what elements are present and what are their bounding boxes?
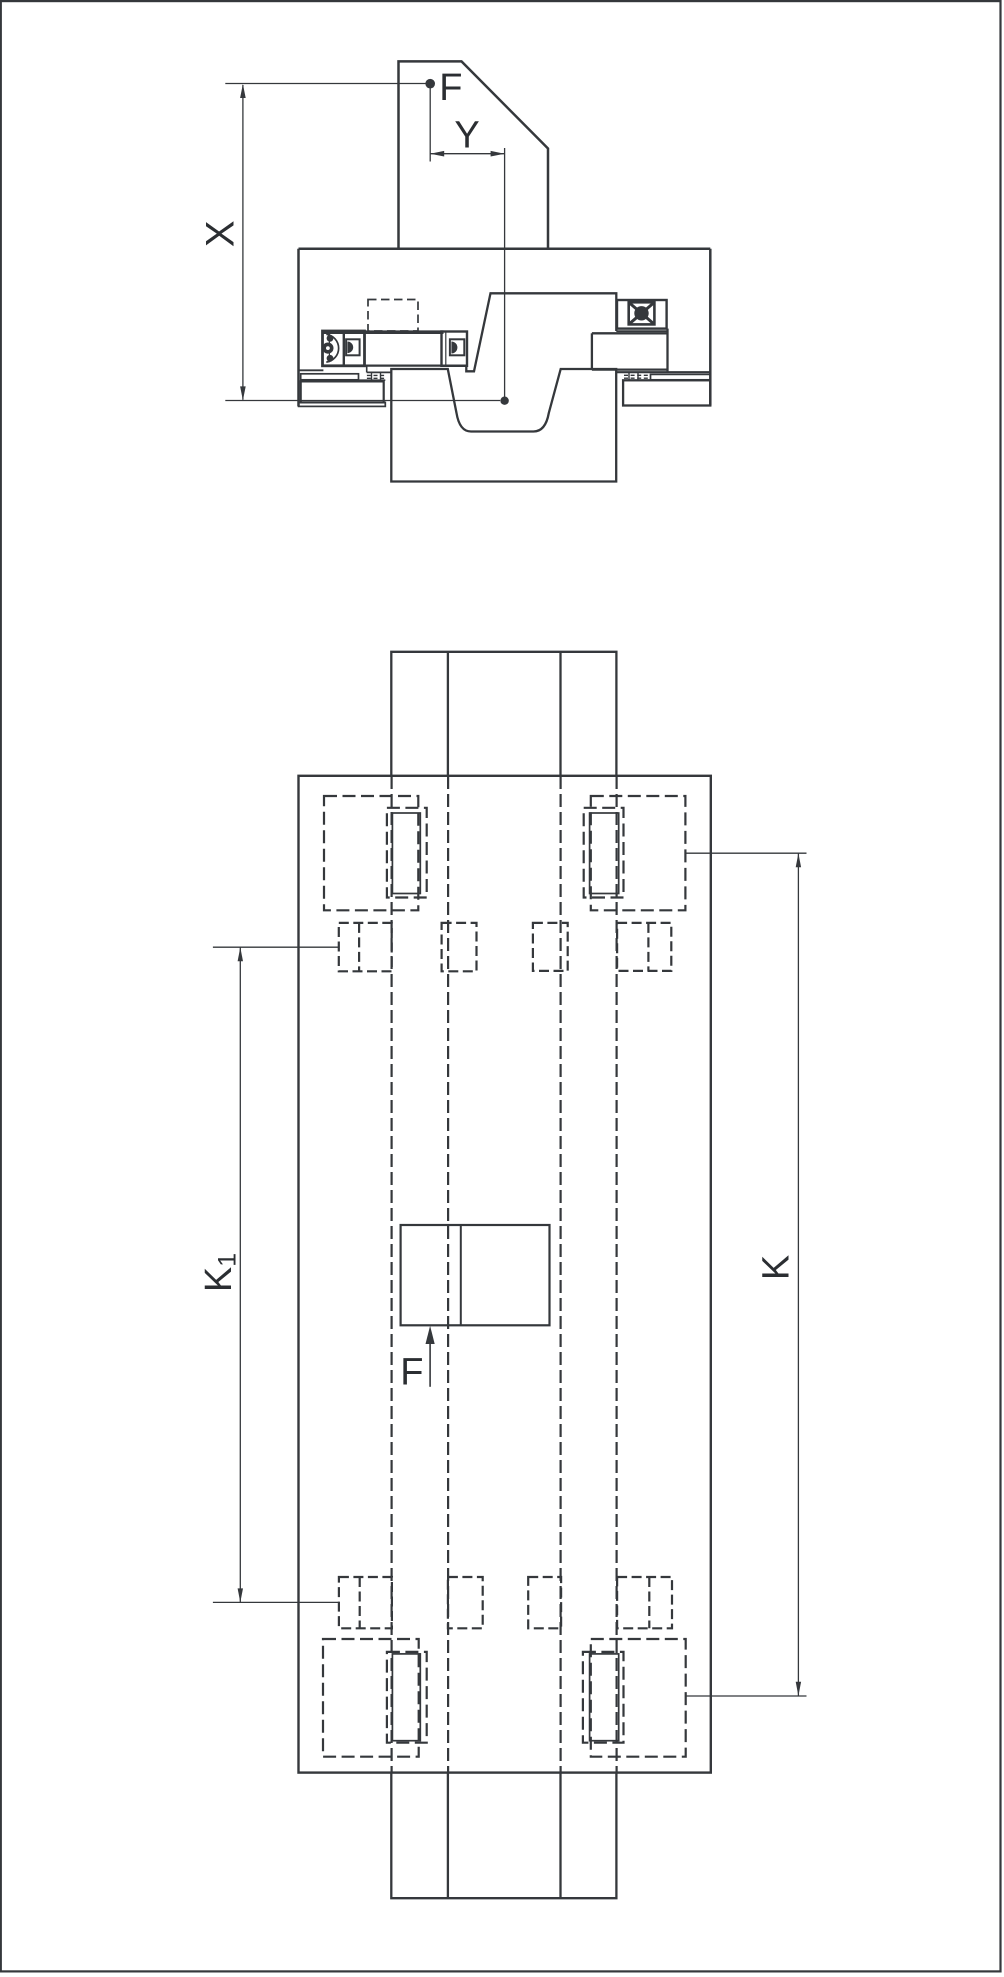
svg-text:F: F [439, 67, 462, 109]
svg-text:K: K [755, 1255, 797, 1280]
svg-text:Y: Y [454, 115, 479, 157]
svg-text:K1: K1 [198, 1253, 242, 1292]
svg-text:X: X [199, 220, 243, 247]
svg-text:F: F [400, 1352, 423, 1394]
